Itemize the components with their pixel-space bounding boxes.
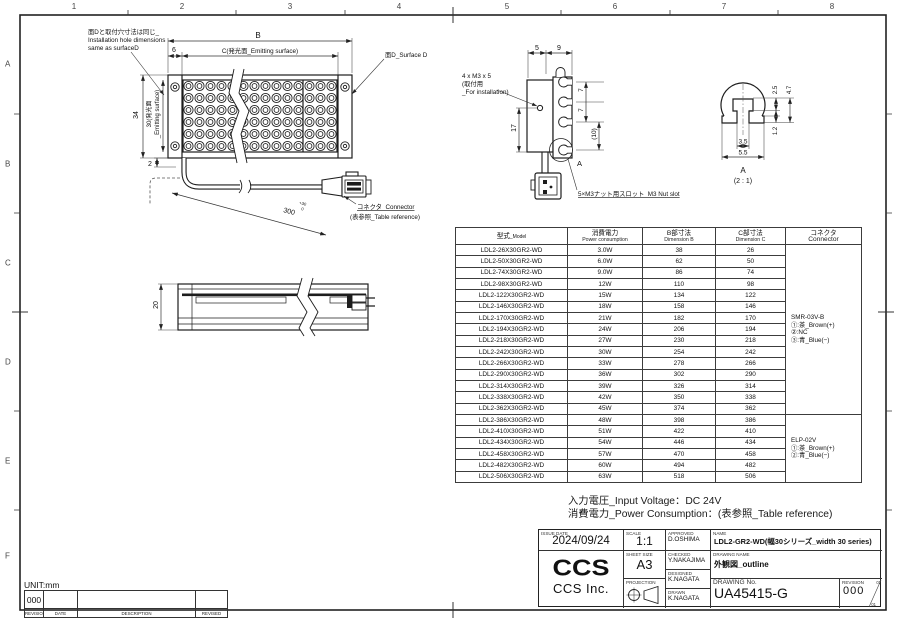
col-connector: コネクタConnector xyxy=(786,228,862,245)
strip-revision-value: 000 xyxy=(25,591,44,609)
spec-cell: 398 xyxy=(643,414,716,425)
zone-row-label: F xyxy=(5,552,10,561)
spec-cell: 242 xyxy=(716,346,786,357)
spec-cell: 30W xyxy=(568,346,643,357)
approved-cell: APPROVED D.OSHIMA xyxy=(666,530,711,551)
zone-row-label: C xyxy=(5,259,11,268)
dim-6: 6 xyxy=(172,47,176,54)
section-connector xyxy=(531,173,561,199)
zone-col-label: 5 xyxy=(505,2,509,11)
zone-col-label: 4 xyxy=(397,2,401,11)
dim-300: 300 xyxy=(282,207,295,217)
spec-cell: 230 xyxy=(643,335,716,346)
spec-cell: 134 xyxy=(643,290,716,301)
spec-cell: 458 xyxy=(716,448,786,459)
dim-10: (10) xyxy=(591,128,598,140)
spec-cell: 3.0W xyxy=(568,245,643,256)
spec-cell: 18W xyxy=(568,301,643,312)
scale-value: 1:1 xyxy=(624,534,665,548)
spec-row: LDL2-386X30GR2-WD48W398386ELP-02V①:茶_Bro… xyxy=(456,414,862,425)
dim-4p7: 4.7 xyxy=(787,85,793,94)
title-block: ISSUE DATE 2024/09/24 CCS CCS Inc. SCALE… xyxy=(538,529,881,607)
spec-cell: 15W xyxy=(568,290,643,301)
rev-mark-top: 01 xyxy=(876,580,881,585)
spec-cell: 33W xyxy=(568,358,643,369)
dim-5: 5 xyxy=(535,45,539,52)
spec-cell: 206 xyxy=(643,324,716,335)
spec-cell: LDL2-410X30GR2-WD xyxy=(456,426,568,437)
spec-table: 型式_Model 消費電力Power consumption B部寸法Dimen… xyxy=(455,227,862,483)
spec-cell: 362 xyxy=(716,403,786,414)
spec-cell: 314 xyxy=(716,380,786,391)
connector-group-line: ②:青_Blue(−) xyxy=(786,452,861,460)
checked-value: Y.NAKAJIMA xyxy=(666,557,710,564)
spec-cell: LDL2-386X30GR2-WD xyxy=(456,414,568,425)
zone-col-label: 3 xyxy=(288,2,292,11)
spec-cell: 62 xyxy=(643,256,716,267)
dim-b: B xyxy=(255,31,260,40)
spec-cell: 38 xyxy=(643,245,716,256)
spec-cell: 170 xyxy=(716,312,786,323)
spec-cell: 98 xyxy=(716,278,786,289)
revision-strip: 000 REVISION DATE DESCRIPTION REVISED xyxy=(24,590,228,618)
spec-cell: 482 xyxy=(716,460,786,471)
power-consumption-note: 消費電力_Power Consumption：(表参照_Table refere… xyxy=(568,508,832,521)
m3-note-line1: 4 x M3 x 5 xyxy=(462,73,492,80)
spec-cell: 194 xyxy=(716,324,786,335)
drawn-cell: DRAWN K.NAGATA xyxy=(666,589,711,608)
spec-cell: 422 xyxy=(643,426,716,437)
spec-cell: 122 xyxy=(716,290,786,301)
col-dim-b: B部寸法Dimension B xyxy=(643,228,716,245)
spec-cell: 60W xyxy=(568,460,643,471)
spec-cell: LDL2-362X30GR2-WD xyxy=(456,403,568,414)
strip-description-label: DESCRIPTION xyxy=(78,609,196,618)
spec-cell: 182 xyxy=(643,312,716,323)
spec-cell: 434 xyxy=(716,437,786,448)
profile-view: 20 xyxy=(153,278,375,336)
dim-20: 20 xyxy=(153,301,160,309)
nut-slot-label: 5×M3ナット用スロット_M3 Nut slot xyxy=(578,190,680,198)
revision-cell: REVISION 000 01 01 xyxy=(840,579,882,608)
spec-cell: 48W xyxy=(568,414,643,425)
name-cell: NAME LDL2-GR2-WD(幅30シリーズ_width 30 series… xyxy=(711,530,882,551)
connector-label: コネクタ_Connector xyxy=(357,202,415,211)
rev-mark-bottom: 01 xyxy=(871,602,876,607)
spec-cell: LDL2-506X30GR2-WD xyxy=(456,471,568,482)
spec-cell: 410 xyxy=(716,426,786,437)
spec-cell: LDL2-98X30GR2-WD xyxy=(456,278,568,289)
spec-cell: 45W xyxy=(568,403,643,414)
spec-cell: 518 xyxy=(643,471,716,482)
spec-cell: 446 xyxy=(643,437,716,448)
spec-cell: LDL2-434X30GR2-WD xyxy=(456,437,568,448)
spec-cell: 27W xyxy=(568,335,643,346)
dim-300-tol-dn: 0 xyxy=(301,206,305,212)
issue-date-value: 2024/09/24 xyxy=(539,535,623,547)
zone-row-label: E xyxy=(5,457,10,466)
input-voltage-note: 入力電圧_Input Voltage：DC 24V xyxy=(568,495,832,508)
cable-connector xyxy=(322,172,371,197)
spec-cell: LDL2-194X30GR2-WD xyxy=(456,324,568,335)
spec-cell: 506 xyxy=(716,471,786,482)
spec-cell: 12W xyxy=(568,278,643,289)
spec-cell: 21W xyxy=(568,312,643,323)
drawing-sheet: 面Dと取付穴寸法は同じ_ Installation hole dimension… xyxy=(0,0,900,627)
spec-cell: 146 xyxy=(716,301,786,312)
drawing-no-value: UA45415-G xyxy=(711,585,839,601)
spec-cell: 57W xyxy=(568,448,643,459)
connector-group-cell: SMR-03V-B①:茶_Brown(+)②:NC③:青_Blue(−) xyxy=(786,245,862,415)
dim-34: 34 xyxy=(133,111,140,119)
install-note-line1: 面Dと取付穴寸法は同じ_ xyxy=(88,27,160,36)
detail-a-scale: (2 : 1) xyxy=(734,178,752,185)
spec-cell: 74 xyxy=(716,267,786,278)
strip-revised-label: REVISED xyxy=(196,609,228,618)
spec-cell: LDL2-482X30GR2-WD xyxy=(456,460,568,471)
spec-cell: LDL2-314X30GR2-WD xyxy=(456,380,568,391)
projection-cell: PROJECTION xyxy=(624,579,666,608)
connector-group-cell: ELP-02V①:茶_Brown(+)②:青_Blue(−) xyxy=(786,414,862,482)
spec-row: LDL2-26X30GR2-WD3.0W3826SMR-03V-B①:茶_Bro… xyxy=(456,245,862,256)
drawn-value: K.NAGATA xyxy=(666,595,710,602)
spec-cell: LDL2-458X30GR2-WD xyxy=(456,448,568,459)
spec-cell: 39W xyxy=(568,380,643,391)
projection-symbol-icon xyxy=(626,585,664,605)
col-dim-c: C部寸法Dimension C xyxy=(716,228,786,245)
section-view: A 4 x M3 x 5 (取付用 _For installation) 5 9… xyxy=(461,45,680,199)
approved-value: D.OSHIMA xyxy=(666,536,710,543)
strip-description-value xyxy=(78,591,196,609)
electrical-notes: 入力電圧_Input Voltage：DC 24V 消費電力_Power Con… xyxy=(568,495,832,521)
panel-outline xyxy=(168,75,352,158)
zone-col-label: 7 xyxy=(722,2,726,11)
strip-revision-label: REVISION xyxy=(25,609,44,618)
company-name: CCS Inc. xyxy=(539,581,623,596)
connector-group-line: SMR-03V-B xyxy=(786,314,861,322)
dim-9: 9 xyxy=(557,45,561,52)
spec-cell: 386 xyxy=(716,414,786,425)
ccs-logo: CCS xyxy=(539,557,623,579)
product-name-value: LDL2-GR2-WD(幅30シリーズ_width 30 series) xyxy=(711,536,882,547)
dim-17: 17 xyxy=(511,124,518,132)
designed-value: K.NAGATA xyxy=(666,576,710,583)
strip-revised-value xyxy=(196,591,228,609)
spec-cell: 218 xyxy=(716,335,786,346)
install-note-line2: Installation hole dimensions xyxy=(88,37,165,44)
connector-group-line: ①:茶_Brown(+) xyxy=(786,322,861,330)
spec-cell: 36W xyxy=(568,369,643,380)
dim-7a: 7 xyxy=(578,88,585,92)
spec-cell: LDL2-290X30GR2-WD xyxy=(456,369,568,380)
dim-1p2: 1.2 xyxy=(773,126,779,135)
dim-30-jp: 30(発光面 xyxy=(145,101,153,128)
detail-a-label: A xyxy=(740,166,746,175)
checked-cell: CHECKED Y.NAKAJIMA xyxy=(666,551,711,570)
drawing-name-value: 外観図_outline xyxy=(711,559,882,570)
surface-d-label: 面D_Surface D xyxy=(385,51,428,59)
spec-cell: LDL2-74X30GR2-WD xyxy=(456,267,568,278)
company-cell: CCS CCS Inc. xyxy=(539,551,624,608)
m3-note-line3: _For installation) xyxy=(461,89,509,96)
spec-cell: LDL2-50X30GR2-WD xyxy=(456,256,568,267)
unit-label: UNIT:mm xyxy=(24,580,59,590)
zone-row-label: B xyxy=(5,160,10,169)
dim-5p5: 5.5 xyxy=(738,150,747,157)
dim-2p5: 2.5 xyxy=(773,85,779,94)
issue-date-cell: ISSUE DATE 2024/09/24 xyxy=(539,530,624,551)
spec-cell: 110 xyxy=(643,278,716,289)
zone-col-label: 8 xyxy=(830,2,834,11)
col-model: 型式_Model xyxy=(456,228,568,245)
spec-cell: 278 xyxy=(643,358,716,369)
connector-group-line: ③:青_Blue(−) xyxy=(786,337,861,345)
strip-date-label: DATE xyxy=(44,609,78,618)
spec-cell: LDL2-242X30GR2-WD xyxy=(456,346,568,357)
spec-cell: 63W xyxy=(568,471,643,482)
spec-cell: 9.0W xyxy=(568,267,643,278)
scale-cell: SCALE 1:1 xyxy=(624,530,666,551)
dim-c: C(発光面_Emitting surface) xyxy=(222,46,298,55)
spec-cell: 290 xyxy=(716,369,786,380)
sheet-size-value: A3 xyxy=(624,557,665,572)
connector-group-line: ②:NC xyxy=(786,329,861,337)
designed-cell: DESIGNED K.NAGATA xyxy=(666,570,711,589)
spec-cell: 470 xyxy=(643,448,716,459)
connector-group-line: ELP-02V xyxy=(786,437,861,445)
spec-cell: LDL2-266X30GR2-WD xyxy=(456,358,568,369)
spec-cell: 6.0W xyxy=(568,256,643,267)
section-a-label: A xyxy=(577,159,582,168)
dim-2: 2 xyxy=(148,161,152,168)
spec-cell: 350 xyxy=(643,392,716,403)
sheet-size-cell: SHEET SIZE A3 xyxy=(624,551,666,579)
drawing-name-cell: DRAWING NAME 外観図_outline xyxy=(711,551,882,579)
zone-row-label: D xyxy=(5,358,11,367)
dim-7b: 7 xyxy=(578,108,585,112)
connector-ref-label: (表参照_Table reference) xyxy=(350,212,420,221)
spec-cell: LDL2-122X30GR2-WD xyxy=(456,290,568,301)
spec-cell: 374 xyxy=(643,403,716,414)
detail-a-view: 2.5 4.7 1.2 3.5 5.5 A (2 : 1) xyxy=(721,83,794,185)
spec-cell: 254 xyxy=(643,346,716,357)
spec-header-row: 型式_Model 消費電力Power consumption B部寸法Dimen… xyxy=(456,228,862,245)
spec-cell: 338 xyxy=(716,392,786,403)
zone-col-label: 2 xyxy=(180,2,184,11)
spec-cell: LDL2-338X30GR2-WD xyxy=(456,392,568,403)
spec-cell: 50 xyxy=(716,256,786,267)
spec-cell: 302 xyxy=(643,369,716,380)
spec-cell: LDL2-26X30GR2-WD xyxy=(456,245,568,256)
strip-date-value xyxy=(44,591,78,609)
spec-cell: 326 xyxy=(643,380,716,391)
spec-cell: 26 xyxy=(716,245,786,256)
front-view: 面Dと取付穴寸法は同じ_ Installation hole dimension… xyxy=(88,27,428,235)
spec-cell: 51W xyxy=(568,426,643,437)
zone-col-label: 6 xyxy=(613,2,617,11)
spec-cell: 42W xyxy=(568,392,643,403)
spec-cell: LDL2-146X30GR2-WD xyxy=(456,301,568,312)
spec-cell: 86 xyxy=(643,267,716,278)
spec-cell: LDL2-218X30GR2-WD xyxy=(456,335,568,346)
spec-cell: 266 xyxy=(716,358,786,369)
spec-cell: 24W xyxy=(568,324,643,335)
zone-col-label: 1 xyxy=(72,2,76,11)
cable xyxy=(150,158,324,204)
m3-note-line2: (取付用 xyxy=(462,79,483,88)
spec-cell: 494 xyxy=(643,460,716,471)
spec-cell: 54W xyxy=(568,437,643,448)
spec-cell: 158 xyxy=(643,301,716,312)
dim-30-en: _Emitting surface) xyxy=(155,90,161,139)
dim-3p5: 3.5 xyxy=(738,139,747,146)
install-note-line3: same as surfaceD xyxy=(88,45,139,52)
drawing-no-cell: DRAWING No. UA45415-G xyxy=(711,579,840,608)
spec-cell: LDL2-170X30GR2-WD xyxy=(456,312,568,323)
zone-row-label: A xyxy=(5,60,10,69)
col-power: 消費電力Power consumption xyxy=(568,228,643,245)
